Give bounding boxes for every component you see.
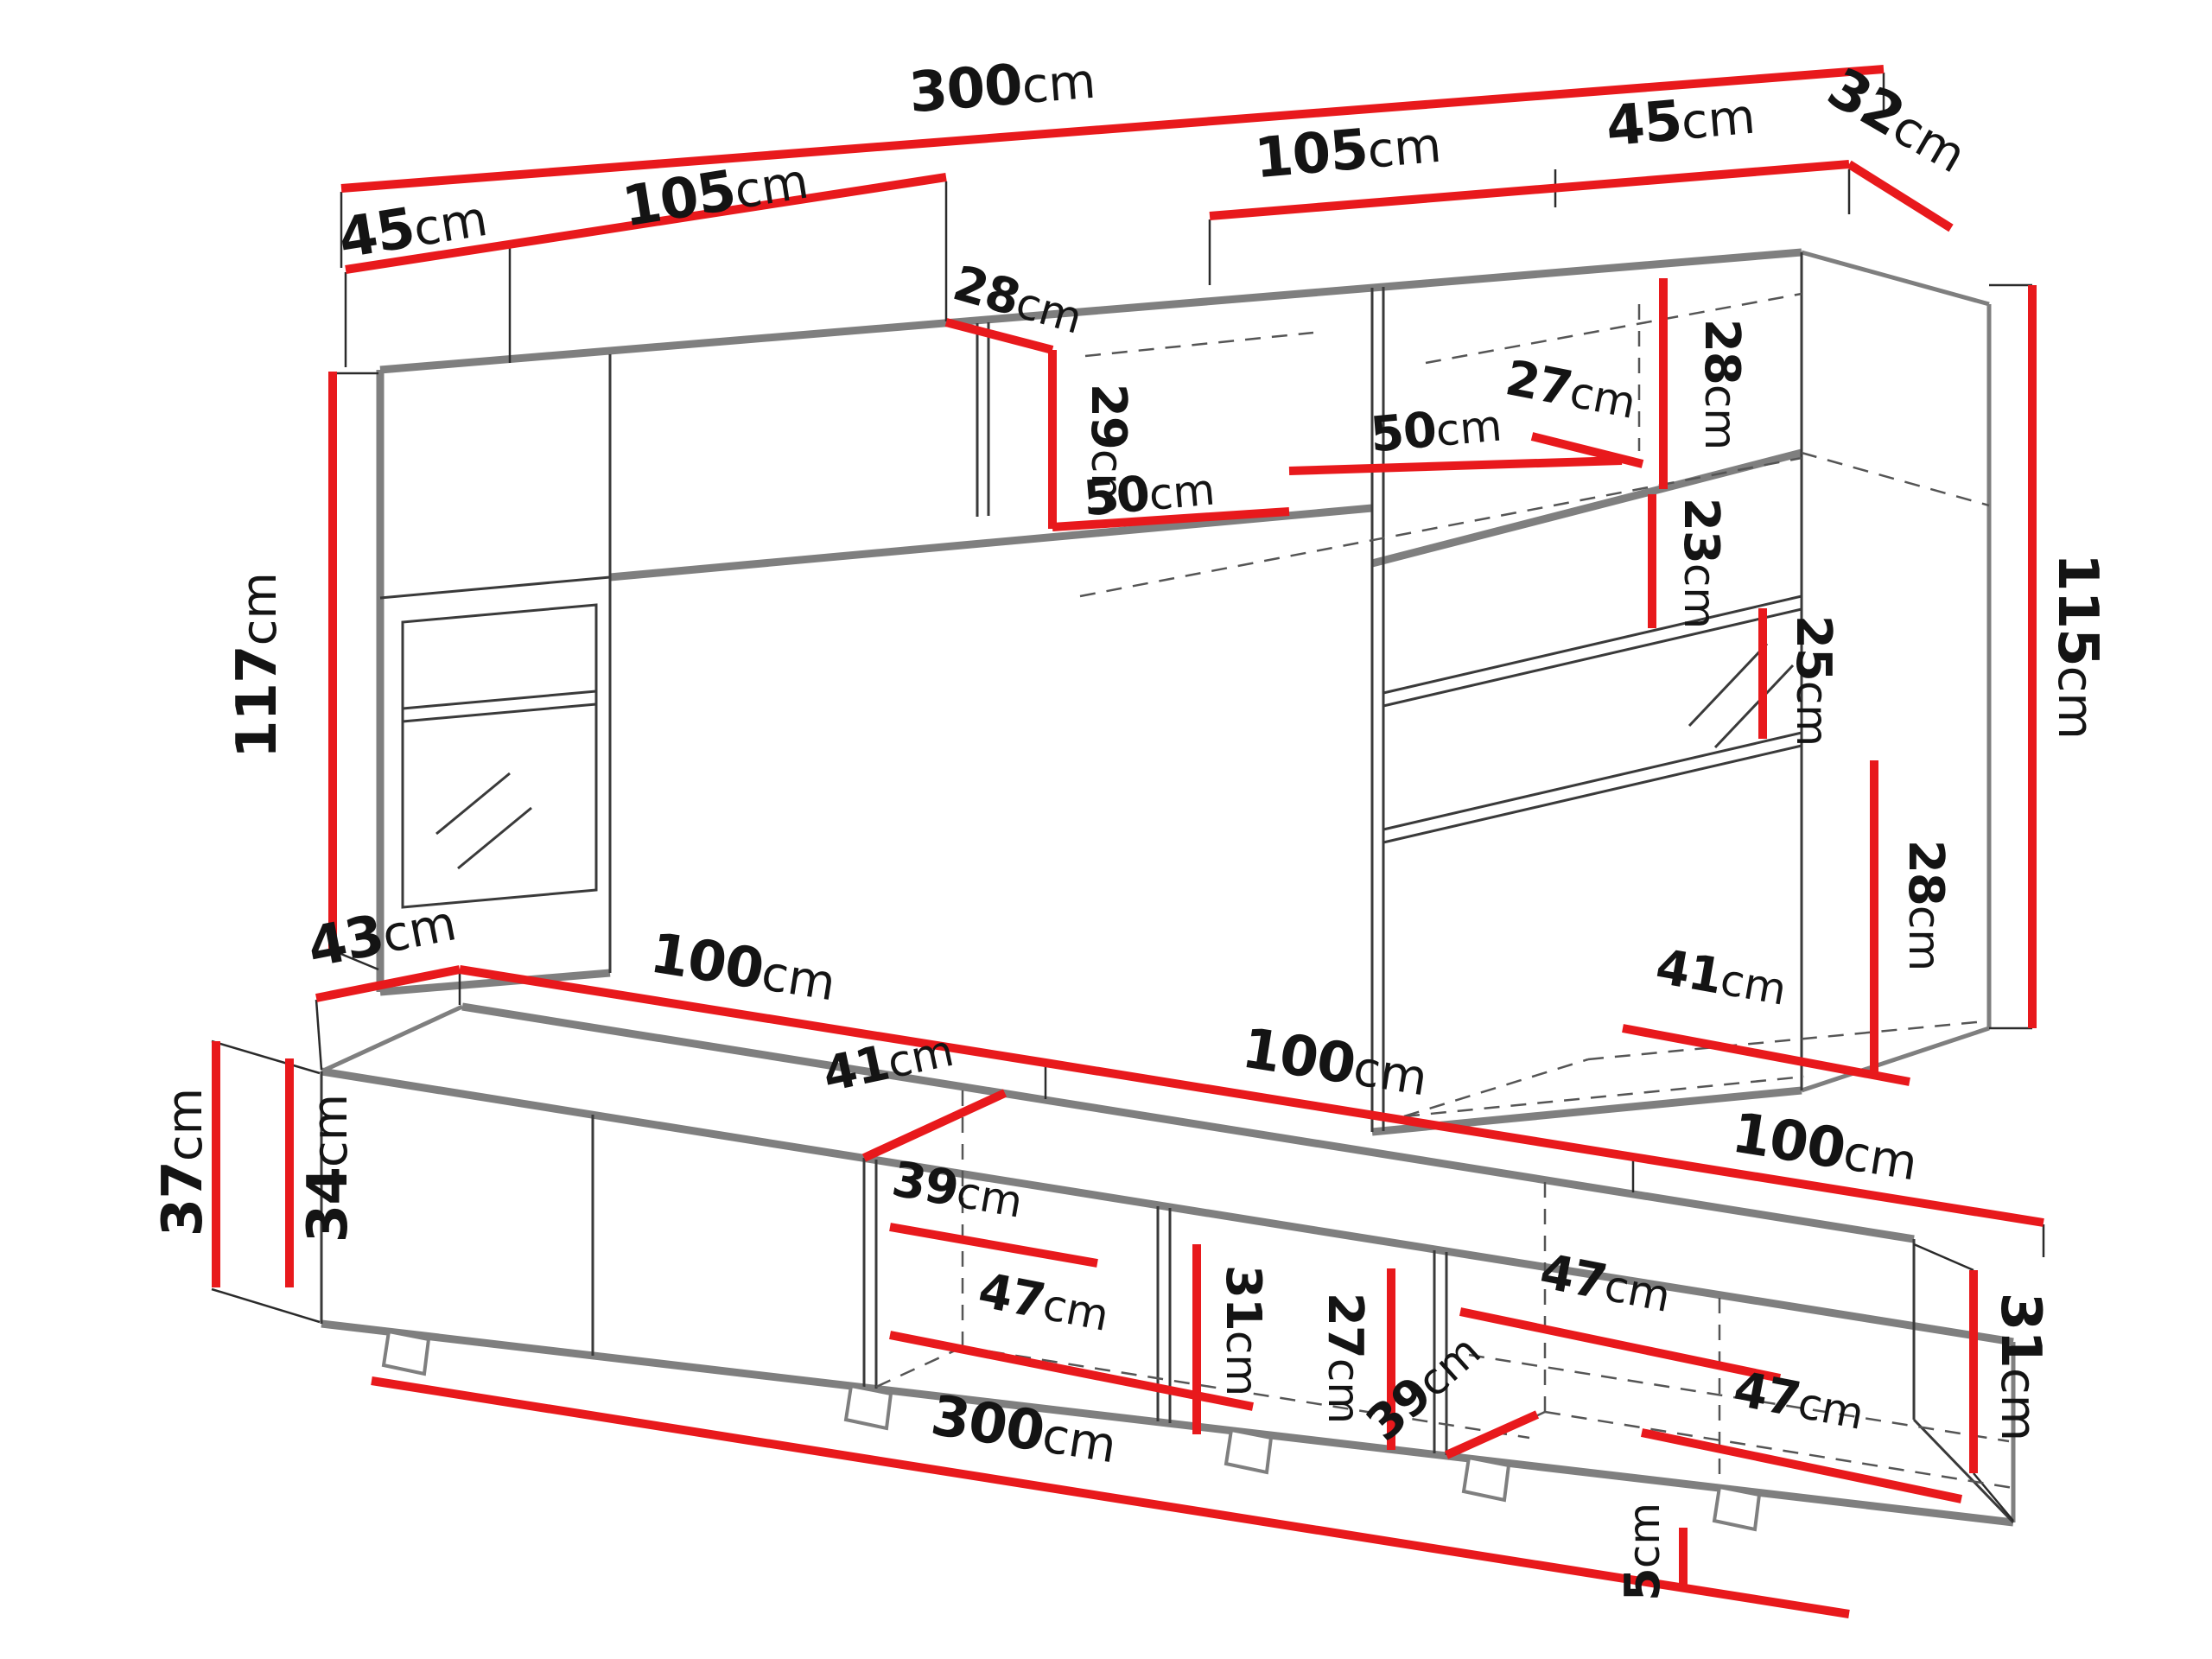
dim-bottom-foot-height: 5cm — [1619, 1503, 1668, 1601]
dim-top-left-column-height: 117cm — [230, 572, 285, 759]
dim-top-shelf-spacing-upper: 23cm — [1676, 498, 1725, 629]
tv-stand-drawing — [212, 969, 2044, 1614]
dim-bottom-body-height: 34cm — [301, 1094, 356, 1243]
dim-top-niche-width-right: 50cm — [1369, 400, 1503, 460]
dim-top-shelf-spacing-middle: 25cm — [1789, 615, 1837, 747]
dim-top-top-compartment-height: 28cm — [1697, 319, 1745, 450]
dim-bottom-compartment-height: 31cm — [1218, 1265, 1267, 1396]
dim-top-right-column-height: 115cm — [2050, 553, 2105, 740]
dim-bottom-right-end-height: 31cm — [1993, 1293, 2048, 1441]
dim-top-right-side-width: 45cm — [1604, 87, 1757, 156]
dim-top-niche-width-left: 50cm — [1082, 464, 1217, 524]
diagram-stage: 300cm 45cm 105cm 105cm 45cm 32cm 117cm 2… — [0, 0, 2212, 1659]
dim-top-overall-width: 300cm — [907, 52, 1097, 122]
dim-bottom-height-with-feet: 37cm — [156, 1088, 211, 1236]
furniture-line-art — [0, 0, 2212, 1659]
dim-top-shelf-spacing-lower: 28cm — [1901, 840, 1949, 971]
